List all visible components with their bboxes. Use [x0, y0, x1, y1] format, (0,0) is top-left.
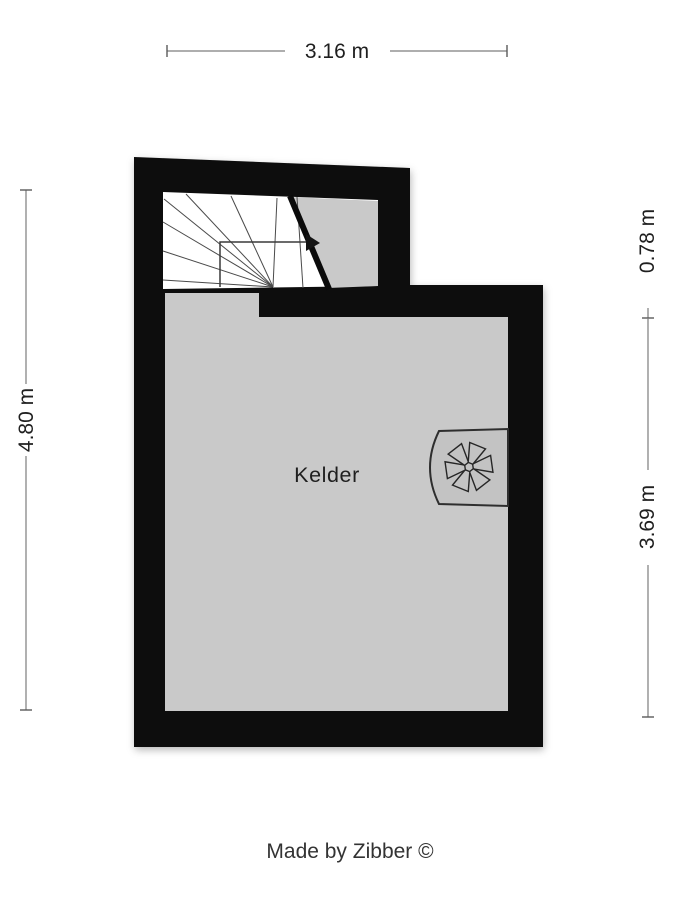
floorplan-canvas: 3.16 m 4.80 m 0.78 m 3.69 m Kelder Made … [0, 0, 675, 900]
ventilation-unit [430, 429, 508, 506]
credit-text: Made by Zibber © [266, 840, 434, 863]
dimension-top: 3.16 m [167, 40, 507, 63]
room-label: Kelder [294, 463, 360, 487]
dimension-right-lower: 3.69 m [636, 318, 659, 717]
dimension-left: 4.80 m [15, 190, 38, 710]
dimension-top-label: 3.16 m [305, 40, 369, 63]
floorplan-drawing: 3.16 m 4.80 m 0.78 m 3.69 m Kelder Made … [0, 0, 675, 900]
dimension-left-label: 4.80 m [15, 388, 38, 452]
dimension-right-lower-label: 3.69 m [636, 485, 659, 549]
dimension-right-upper: 0.78 m [636, 209, 659, 318]
dimension-right-upper-label: 0.78 m [636, 209, 659, 273]
ventilation-box [430, 429, 508, 506]
